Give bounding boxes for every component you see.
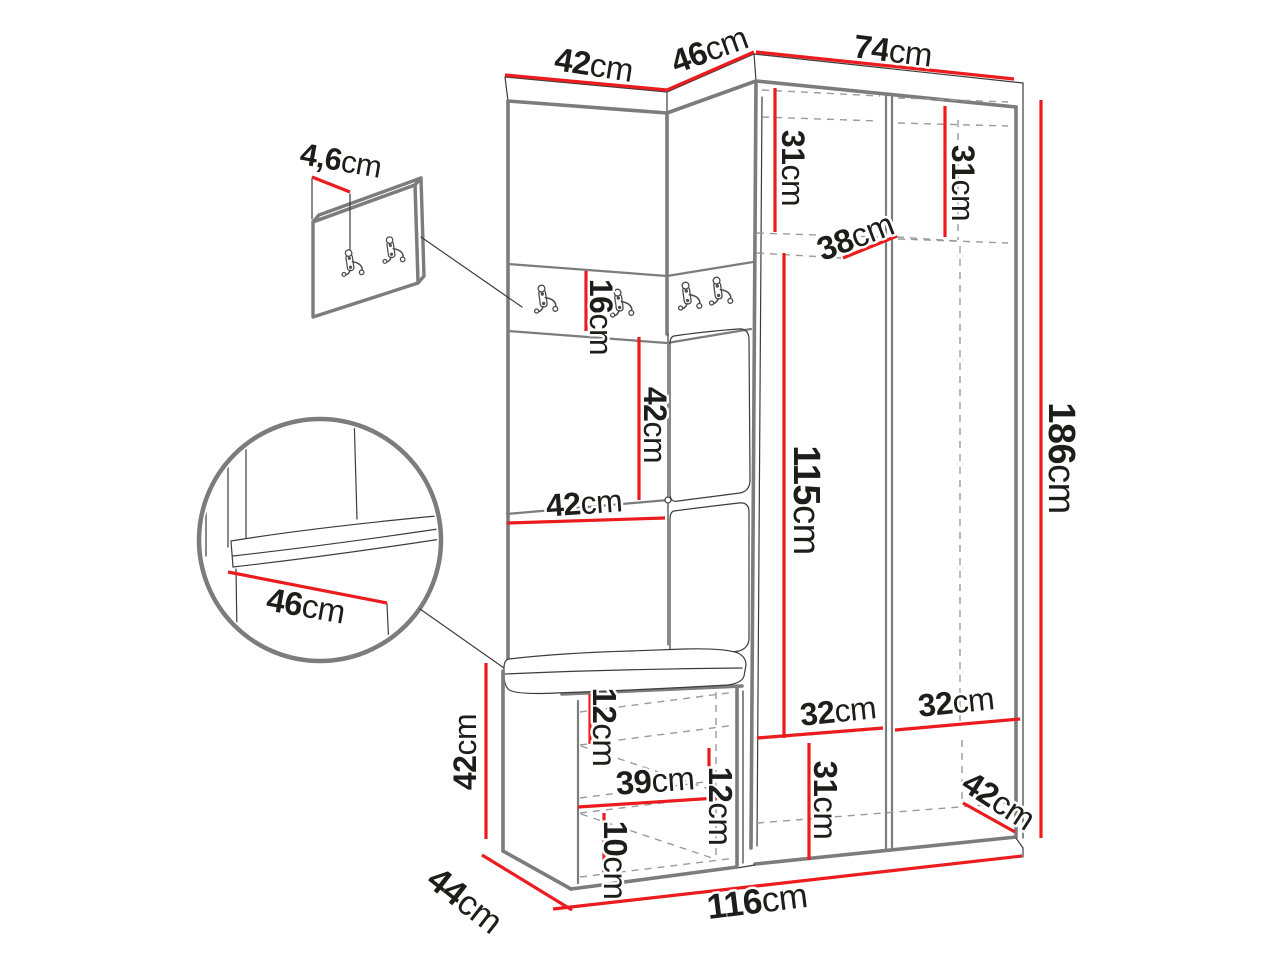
screenshot-canvas: 42cm46cm74cm31cm31cm38cm186cm16cm42cm42c… <box>0 0 1280 960</box>
dimension-line-bench-inner-width <box>578 798 717 807</box>
dimension-shelf-width-right-door: 32cm <box>895 680 1020 730</box>
dimension-shelf-width-left-door: 32cm <box>757 689 883 738</box>
dimension-total-height: 186cm <box>1040 100 1082 838</box>
dimension-label-inner-height-top-left: 31cm <box>775 130 811 206</box>
dimension-label-total-width: 116cm <box>705 876 810 927</box>
dimension-label-bench-lower-gap: 10cm <box>598 821 635 900</box>
dimension-label-niche-height: 42cm <box>637 387 673 463</box>
dimension-label-bottom-inner-height: 31cm <box>808 761 845 840</box>
dimension-panel-depth: 4,6cm <box>298 136 385 192</box>
dimension-label-hook-strip-height: 16cm <box>583 279 619 355</box>
dimension-label-bottom-depth-right: 42cm <box>956 763 1042 837</box>
dimension-inner-height-top-left: 31cm <box>775 88 811 232</box>
dimension-bench-height: 42cm <box>447 663 486 839</box>
furniture-diagram: 42cm46cm74cm31cm31cm38cm186cm16cm42cm42c… <box>0 0 1280 960</box>
dimension-label-inner-height-top-right: 31cm <box>945 145 981 221</box>
dimension-label-bench-top-gap: 12cm <box>587 688 624 767</box>
dimension-line-panel-depth <box>312 177 350 192</box>
coat-hooks <box>531 275 733 318</box>
dimension-top-width-corner: 46cm <box>666 18 754 90</box>
dimension-label-tall-inner-height: 115cm <box>785 445 827 554</box>
dimension-label-panel-depth: 4,6cm <box>298 136 385 185</box>
dimension-label-shelf-width-left-door: 32cm <box>798 689 878 733</box>
wall-hook-panel <box>312 178 424 317</box>
dimension-bottom-depth-right: 42cm <box>956 763 1042 837</box>
dimension-bench-lower-gap: 10cm <box>598 813 635 899</box>
dimension-hook-strip-height: 16cm <box>583 271 619 355</box>
dimension-top-width-left: 42cm <box>505 40 667 90</box>
dimension-inner-height-top-right: 31cm <box>945 106 981 237</box>
dimension-label-bench-height: 42cm <box>447 714 483 790</box>
dimension-label-shelf-width-right-door: 32cm <box>916 680 996 724</box>
coat-hook-icon <box>675 280 702 311</box>
coat-hook-icon <box>706 275 733 306</box>
coat-hook-icon <box>531 283 558 314</box>
dimension-label-bench-shelf-gap: 12cm <box>703 767 740 846</box>
dimension-bottom-inner-height: 31cm <box>808 743 845 860</box>
seat-cushion-detail <box>231 516 441 567</box>
dimension-bench-shelf-gap: 12cm <box>703 748 740 845</box>
dimension-label-bench-depth: 44cm <box>420 859 510 941</box>
dimension-label-bench-inner-width: 39cm <box>614 759 695 801</box>
dimension-bench-top-gap: 12cm <box>587 688 624 767</box>
dimension-tall-inner-height: 115cm <box>784 253 827 738</box>
dimension-label-seat-depth-detail: 46cm <box>264 580 348 630</box>
dimension-line-shelf-width-right-door <box>895 719 1020 730</box>
dimension-label-niche-width: 42cm <box>545 482 624 523</box>
dimension-top-width-right: 74cm <box>756 27 1014 79</box>
dimension-label-total-height: 186cm <box>1040 402 1082 514</box>
dimension-bench-depth: 44cm <box>420 855 572 941</box>
dimension-seat-depth-detail: 46cm <box>228 572 387 630</box>
